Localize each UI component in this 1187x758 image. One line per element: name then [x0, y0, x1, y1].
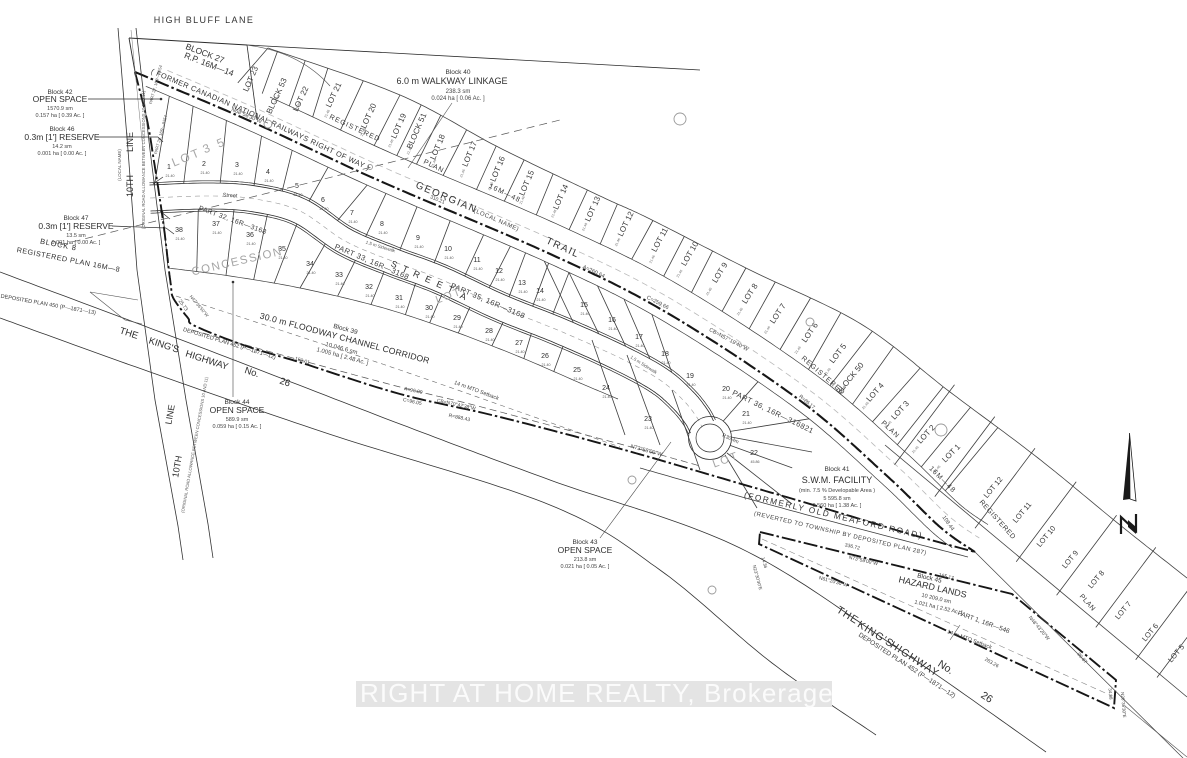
svg-text:10: 10: [444, 246, 452, 253]
svg-text:21.40: 21.40: [662, 361, 671, 365]
svg-text:12: 12: [495, 268, 503, 275]
svg-text:3: 3: [235, 162, 239, 169]
svg-text:OPEN SPACE: OPEN SPACE: [210, 405, 265, 415]
svg-text:21.40: 21.40: [537, 298, 546, 302]
svg-text:21.40: 21.40: [396, 305, 405, 309]
svg-text:Block 40: Block 40: [446, 69, 471, 76]
svg-text:21.40: 21.40: [234, 172, 243, 176]
svg-text:13: 13: [518, 280, 526, 287]
svg-text:31: 31: [395, 295, 403, 302]
svg-text:2: 2: [202, 161, 206, 168]
svg-text:21.40: 21.40: [454, 325, 463, 329]
svg-text:32: 32: [365, 284, 373, 291]
svg-text:14: 14: [536, 288, 544, 295]
svg-text:S.W.M. FACILITY: S.W.M. FACILITY: [802, 475, 873, 485]
svg-text:21: 21: [742, 411, 750, 418]
svg-text:1: 1: [167, 164, 171, 171]
svg-text:21.40: 21.40: [486, 338, 495, 342]
svg-text:5 595.8 sm: 5 595.8 sm: [823, 496, 851, 502]
svg-text:0.3m [1'] RESERVE: 0.3m [1'] RESERVE: [38, 221, 113, 231]
svg-text:6: 6: [321, 197, 325, 204]
svg-text:30: 30: [425, 305, 433, 312]
svg-text:21.40: 21.40: [366, 294, 375, 298]
svg-text:9: 9: [416, 235, 420, 242]
svg-text:21.40: 21.40: [213, 231, 222, 235]
svg-text:Street: Street: [223, 192, 239, 199]
svg-text:21.40: 21.40: [496, 278, 505, 282]
svg-text:21.40: 21.40: [581, 312, 590, 316]
svg-text:LINE: LINE: [125, 132, 135, 152]
svg-text:36: 36: [246, 232, 254, 239]
svg-text:6.0 m WALKWAY LINKAGE: 6.0 m WALKWAY LINKAGE: [396, 76, 507, 86]
svg-text:4: 4: [266, 169, 270, 176]
svg-text:29: 29: [453, 315, 461, 322]
svg-text:21.40: 21.40: [609, 327, 618, 331]
svg-text:27: 27: [515, 340, 523, 347]
svg-text:28: 28: [485, 328, 493, 335]
svg-text:34: 34: [306, 261, 314, 268]
svg-text:16: 16: [608, 317, 616, 324]
svg-text:0.3m [1'] RESERVE: 0.3m [1'] RESERVE: [24, 132, 99, 142]
svg-text:37: 37: [212, 221, 220, 228]
svg-text:21.40: 21.40: [415, 245, 424, 249]
svg-text:21.40: 21.40: [687, 383, 696, 387]
svg-text:20: 20: [722, 386, 730, 393]
svg-text:0.560 ha [ 1.38 Ac. ]: 0.560 ha [ 1.38 Ac. ]: [813, 503, 862, 509]
svg-text:22: 22: [750, 450, 758, 457]
svg-text:HIGH BLUFF LANE: HIGH BLUFF LANE: [154, 15, 255, 25]
svg-text:5: 5: [295, 183, 299, 190]
svg-text:21.40: 21.40: [474, 267, 483, 271]
svg-text:589.9 sm: 589.9 sm: [226, 417, 249, 423]
svg-text:21.40: 21.40: [201, 171, 210, 175]
svg-text:21.40: 21.40: [294, 193, 303, 197]
svg-text:21.40: 21.40: [519, 290, 528, 294]
svg-text:19: 19: [686, 373, 694, 380]
svg-text:10TH: 10TH: [125, 175, 135, 197]
svg-text:17: 17: [635, 334, 643, 341]
svg-text:18: 18: [661, 351, 669, 358]
svg-text:21.40: 21.40: [247, 242, 256, 246]
svg-text:21.40: 21.40: [743, 421, 752, 425]
svg-text:238.3 sm: 238.3 sm: [446, 89, 471, 95]
svg-text:8: 8: [380, 221, 384, 228]
svg-text:26: 26: [541, 353, 549, 360]
svg-text:RIGHT AT HOME REALTY, Brokerag: RIGHT AT HOME REALTY, Brokerage: [360, 678, 834, 708]
svg-text:21.40: 21.40: [176, 237, 185, 241]
svg-text:24: 24: [602, 385, 610, 392]
svg-text:11: 11: [473, 257, 480, 264]
svg-text:34.98: 34.98: [1108, 688, 1114, 700]
svg-text:21.40: 21.40: [320, 207, 329, 211]
svg-text:21.40: 21.40: [265, 179, 274, 183]
svg-text:OPEN SPACE: OPEN SPACE: [558, 545, 613, 555]
svg-text:21.40: 21.40: [445, 256, 454, 260]
svg-text:0.024 ha [ 0.06 Ac. ]: 0.024 ha [ 0.06 Ac. ]: [431, 96, 485, 102]
svg-text:0.157 ha [ 0.39 Ac. ]: 0.157 ha [ 0.39 Ac. ]: [36, 113, 85, 119]
svg-text:21.40: 21.40: [723, 396, 732, 400]
svg-text:45.86: 45.86: [751, 460, 760, 464]
svg-text:Block 41: Block 41: [825, 466, 850, 473]
svg-text:0.001 ha [ 0.00 Ac. ]: 0.001 ha [ 0.00 Ac. ]: [38, 151, 87, 157]
svg-text:213.8 sm: 213.8 sm: [574, 557, 597, 563]
svg-text:21.40: 21.40: [336, 282, 345, 286]
svg-text:21.40: 21.40: [426, 315, 435, 319]
svg-text:38: 38: [175, 227, 183, 234]
svg-text:13.5 sm: 13.5 sm: [66, 233, 86, 239]
svg-text:21.40: 21.40: [166, 174, 175, 178]
svg-text:21.40: 21.40: [379, 231, 388, 235]
svg-text:21.40: 21.40: [636, 344, 645, 348]
svg-text:25: 25: [573, 367, 581, 374]
svg-text:21.40: 21.40: [645, 426, 654, 430]
svg-text:7: 7: [350, 210, 354, 217]
svg-text:0.021 ha [ 0.05 Ac. ]: 0.021 ha [ 0.05 Ac. ]: [561, 564, 610, 570]
svg-text:OPEN SPACE: OPEN SPACE: [33, 94, 88, 104]
svg-text:21.40: 21.40: [307, 271, 316, 275]
svg-text:(min. 7.5 % Developable Area ): (min. 7.5 % Developable Area ): [799, 488, 875, 494]
svg-text:21.40: 21.40: [516, 350, 525, 354]
svg-text:(LOCAL NAME): (LOCAL NAME): [117, 149, 122, 181]
svg-text:1570.9 sm: 1570.9 sm: [47, 106, 73, 112]
svg-text:23: 23: [644, 416, 652, 423]
svg-text:(ORIGINAL ROAD ALLOWANCE BETWE: (ORIGINAL ROAD ALLOWANCE BETWEEN CONCESS…: [141, 90, 146, 229]
svg-text:15: 15: [580, 302, 588, 309]
svg-text:21.40: 21.40: [349, 220, 358, 224]
svg-text:33: 33: [335, 272, 343, 279]
svg-text:0.059 ha [ 0.15 Ac. ]: 0.059 ha [ 0.15 Ac. ]: [213, 424, 262, 430]
svg-text:14.2 sm: 14.2 sm: [52, 144, 72, 150]
